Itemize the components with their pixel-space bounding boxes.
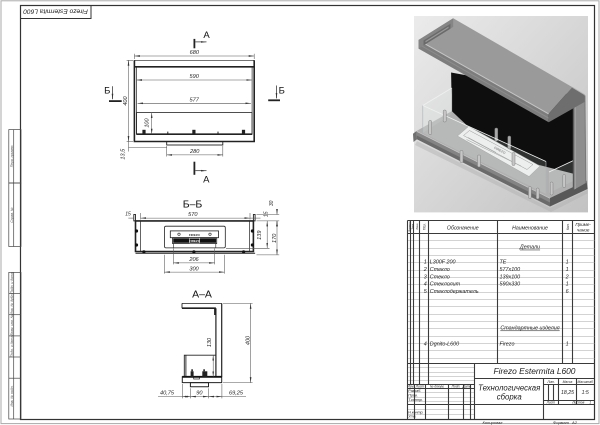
svg-text:1: 1 bbox=[566, 341, 569, 347]
svg-text:Т.контр.: Т.контр. bbox=[408, 398, 423, 402]
svg-text:2: 2 bbox=[423, 267, 427, 273]
svg-text:Кол.: Кол. bbox=[566, 223, 570, 230]
svg-text:280: 280 bbox=[189, 149, 200, 155]
svg-text:Подп. и дата: Подп. и дата bbox=[10, 336, 14, 357]
svg-text:1: 1 bbox=[566, 259, 569, 265]
svg-text:Dgnito-L600: Dgnito-L600 bbox=[430, 341, 459, 347]
svg-text:100: 100 bbox=[144, 117, 150, 127]
svg-text:Листов: Листов bbox=[571, 400, 584, 404]
svg-text:№ докум.: № докум. bbox=[430, 385, 445, 389]
svg-text:Б: Б bbox=[104, 85, 110, 96]
svg-text:590х330: 590х330 bbox=[500, 282, 521, 288]
svg-text:Лист: Лист bbox=[546, 400, 556, 404]
svg-text:L300F 200: L300F 200 bbox=[430, 259, 456, 265]
svg-text:Firezo Estermita L600: Firezo Estermita L600 bbox=[494, 366, 576, 376]
svg-text:170: 170 bbox=[272, 233, 278, 243]
svg-text:40,75: 40,75 bbox=[160, 391, 175, 397]
svg-text:Инв. № дубл.: Инв. № дубл. bbox=[10, 294, 14, 315]
svg-text:Поз.: Поз. bbox=[422, 223, 426, 230]
svg-text:FIREZO: FIREZO bbox=[189, 233, 201, 237]
svg-text:13,5: 13,5 bbox=[121, 148, 127, 160]
svg-text:Инв. № подл.: Инв. № подл. bbox=[10, 385, 14, 406]
svg-text:Технологическая: Технологическая bbox=[478, 383, 541, 392]
svg-text:Масса: Масса bbox=[563, 380, 573, 384]
svg-text:1: 1 bbox=[566, 267, 569, 273]
svg-text:69,25: 69,25 bbox=[229, 391, 244, 397]
svg-text:Стекло: Стекло bbox=[430, 267, 450, 273]
svg-text:90: 90 bbox=[196, 391, 203, 397]
svg-text:Б: Б bbox=[279, 85, 285, 96]
svg-text:Firezo Estermita L600: Firezo Estermita L600 bbox=[23, 8, 88, 15]
svg-text:А2: А2 bbox=[571, 420, 578, 425]
svg-text:Стекло: Стекло bbox=[430, 274, 450, 280]
svg-text:130: 130 bbox=[207, 337, 213, 347]
svg-text:577: 577 bbox=[190, 98, 200, 104]
svg-text:чание: чание bbox=[577, 228, 590, 233]
svg-text:ТЕ: ТЕ bbox=[500, 259, 507, 265]
svg-text:Firezo: Firezo bbox=[500, 341, 515, 347]
svg-text:300: 300 bbox=[189, 266, 199, 272]
svg-text:Лист: Лист bbox=[415, 385, 425, 389]
svg-text:Копировал: Копировал bbox=[483, 420, 504, 425]
svg-text:4: 4 bbox=[424, 341, 427, 347]
svg-text:3: 3 bbox=[424, 274, 427, 280]
svg-text:FIREZO: FIREZO bbox=[189, 239, 201, 243]
svg-text:Взам. инв. №: Взам. инв. № bbox=[10, 314, 14, 335]
svg-text:570: 570 bbox=[188, 212, 198, 218]
svg-text:577х100: 577х100 bbox=[500, 267, 521, 273]
svg-text:680: 680 bbox=[190, 50, 200, 56]
svg-text:400: 400 bbox=[246, 335, 252, 345]
svg-text:15: 15 bbox=[125, 211, 131, 217]
svg-text:Изм.: Изм. bbox=[407, 385, 414, 389]
svg-text:Зона: Зона bbox=[415, 223, 419, 230]
svg-text:590: 590 bbox=[190, 74, 200, 80]
svg-text:1: 1 bbox=[424, 259, 427, 265]
svg-text:1: 1 bbox=[589, 400, 591, 404]
svg-text:Дата: Дата bbox=[462, 385, 472, 389]
svg-text:Б–Б: Б–Б bbox=[183, 199, 203, 211]
svg-text:30: 30 bbox=[269, 200, 275, 206]
svg-text:139: 139 bbox=[257, 231, 263, 240]
svg-text:Перв. примен.: Перв. примен. bbox=[10, 145, 14, 168]
svg-text:1:5: 1:5 bbox=[582, 390, 589, 396]
svg-text:18,25: 18,25 bbox=[561, 390, 574, 396]
svg-text:Детали: Детали bbox=[519, 245, 540, 251]
svg-text:Подп. и дата: Подп. и дата bbox=[10, 272, 14, 293]
svg-text:Подп.: Подп. bbox=[452, 385, 461, 389]
svg-text:Лит.: Лит. bbox=[546, 380, 555, 384]
svg-text:206: 206 bbox=[188, 257, 199, 263]
svg-text:Стеклолит: Стеклолит bbox=[430, 282, 461, 288]
svg-text:Стеклодержатель: Стеклодержатель bbox=[430, 289, 479, 295]
svg-text:Зона: Зона bbox=[410, 223, 414, 229]
svg-text:Наименование: Наименование bbox=[512, 225, 548, 231]
svg-text:Стандартные изделия: Стандартные изделия bbox=[500, 326, 559, 332]
svg-text:6: 6 bbox=[566, 289, 569, 295]
svg-text:Утв.: Утв. bbox=[408, 415, 416, 419]
svg-text:А–А: А–А bbox=[192, 289, 212, 301]
svg-text:15: 15 bbox=[264, 211, 270, 217]
svg-text:Формат: Формат bbox=[553, 420, 570, 425]
svg-text:Приме-: Приме- bbox=[575, 222, 591, 227]
svg-text:400: 400 bbox=[123, 95, 129, 105]
svg-text:Обозначение: Обозначение bbox=[447, 225, 479, 231]
svg-text:сборка: сборка bbox=[497, 392, 523, 401]
svg-text:2: 2 bbox=[565, 274, 569, 280]
svg-text:1: 1 bbox=[566, 282, 569, 288]
svg-text:Масштаб: Масштаб bbox=[577, 380, 593, 384]
svg-text:А: А bbox=[203, 174, 210, 185]
svg-text:139х100: 139х100 bbox=[500, 274, 521, 280]
svg-text:Справ. №: Справ. № bbox=[10, 207, 14, 223]
svg-text:А: А bbox=[203, 30, 210, 41]
svg-text:4: 4 bbox=[424, 282, 427, 288]
